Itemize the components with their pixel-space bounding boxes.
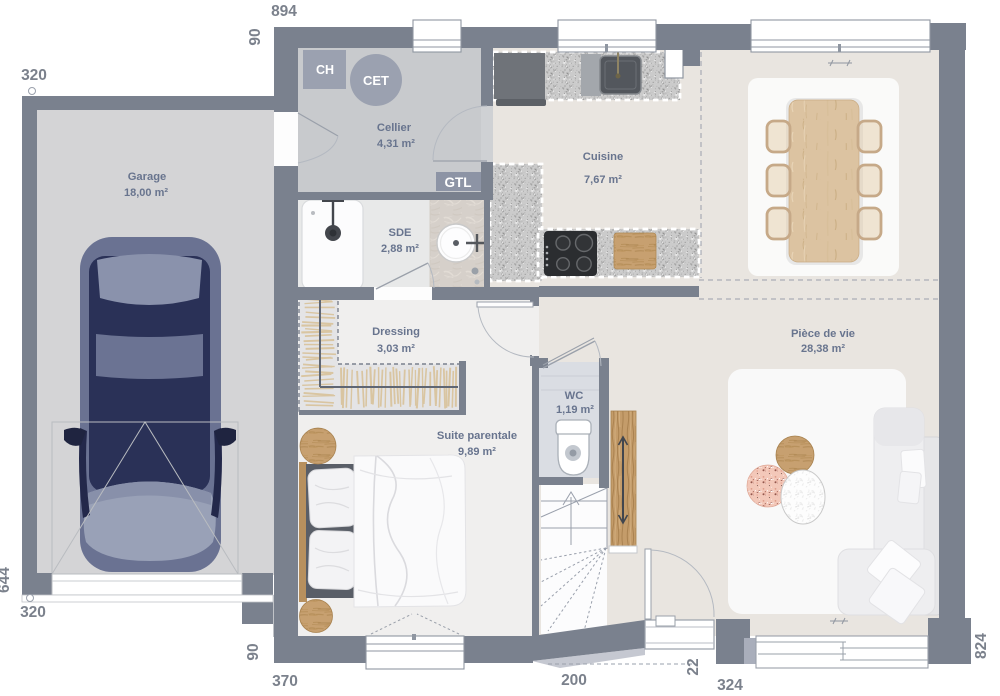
svg-text:90: 90: [245, 643, 262, 660]
svg-text:9,89 m²: 9,89 m²: [458, 446, 496, 458]
svg-text:1,19 m²: 1,19 m²: [556, 404, 594, 416]
svg-text:22: 22: [685, 658, 702, 675]
svg-text:894: 894: [271, 3, 297, 20]
svg-text:Dressing: Dressing: [372, 326, 420, 338]
svg-text:WC: WC: [565, 390, 584, 402]
svg-text:Garage: Garage: [128, 171, 167, 183]
svg-text:320: 320: [21, 67, 47, 84]
svg-text:4,31 m²: 4,31 m²: [377, 138, 415, 150]
svg-text:CET: CET: [363, 73, 389, 88]
svg-text:824: 824: [973, 633, 990, 659]
svg-text:7,67 m²: 7,67 m²: [584, 174, 622, 186]
svg-text:CH: CH: [316, 63, 334, 77]
svg-text:3,03 m²: 3,03 m²: [377, 343, 415, 355]
svg-text:Suite parentale: Suite parentale: [437, 430, 517, 442]
svg-text:Pièce de vie: Pièce de vie: [791, 328, 855, 340]
svg-text:324: 324: [717, 677, 743, 694]
svg-text:GTL: GTL: [445, 175, 472, 190]
svg-text:Cuisine: Cuisine: [583, 151, 623, 163]
svg-text:320: 320: [20, 604, 46, 621]
svg-text:SDE: SDE: [388, 227, 412, 239]
svg-text:644: 644: [0, 567, 13, 593]
svg-text:28,38 m²: 28,38 m²: [801, 343, 845, 355]
svg-text:2,88 m²: 2,88 m²: [381, 243, 419, 255]
svg-text:Cellier: Cellier: [377, 122, 412, 134]
svg-text:18,00 m²: 18,00 m²: [124, 187, 168, 199]
svg-text:90: 90: [247, 28, 264, 45]
svg-text:200: 200: [561, 672, 587, 689]
svg-text:370: 370: [272, 673, 298, 690]
